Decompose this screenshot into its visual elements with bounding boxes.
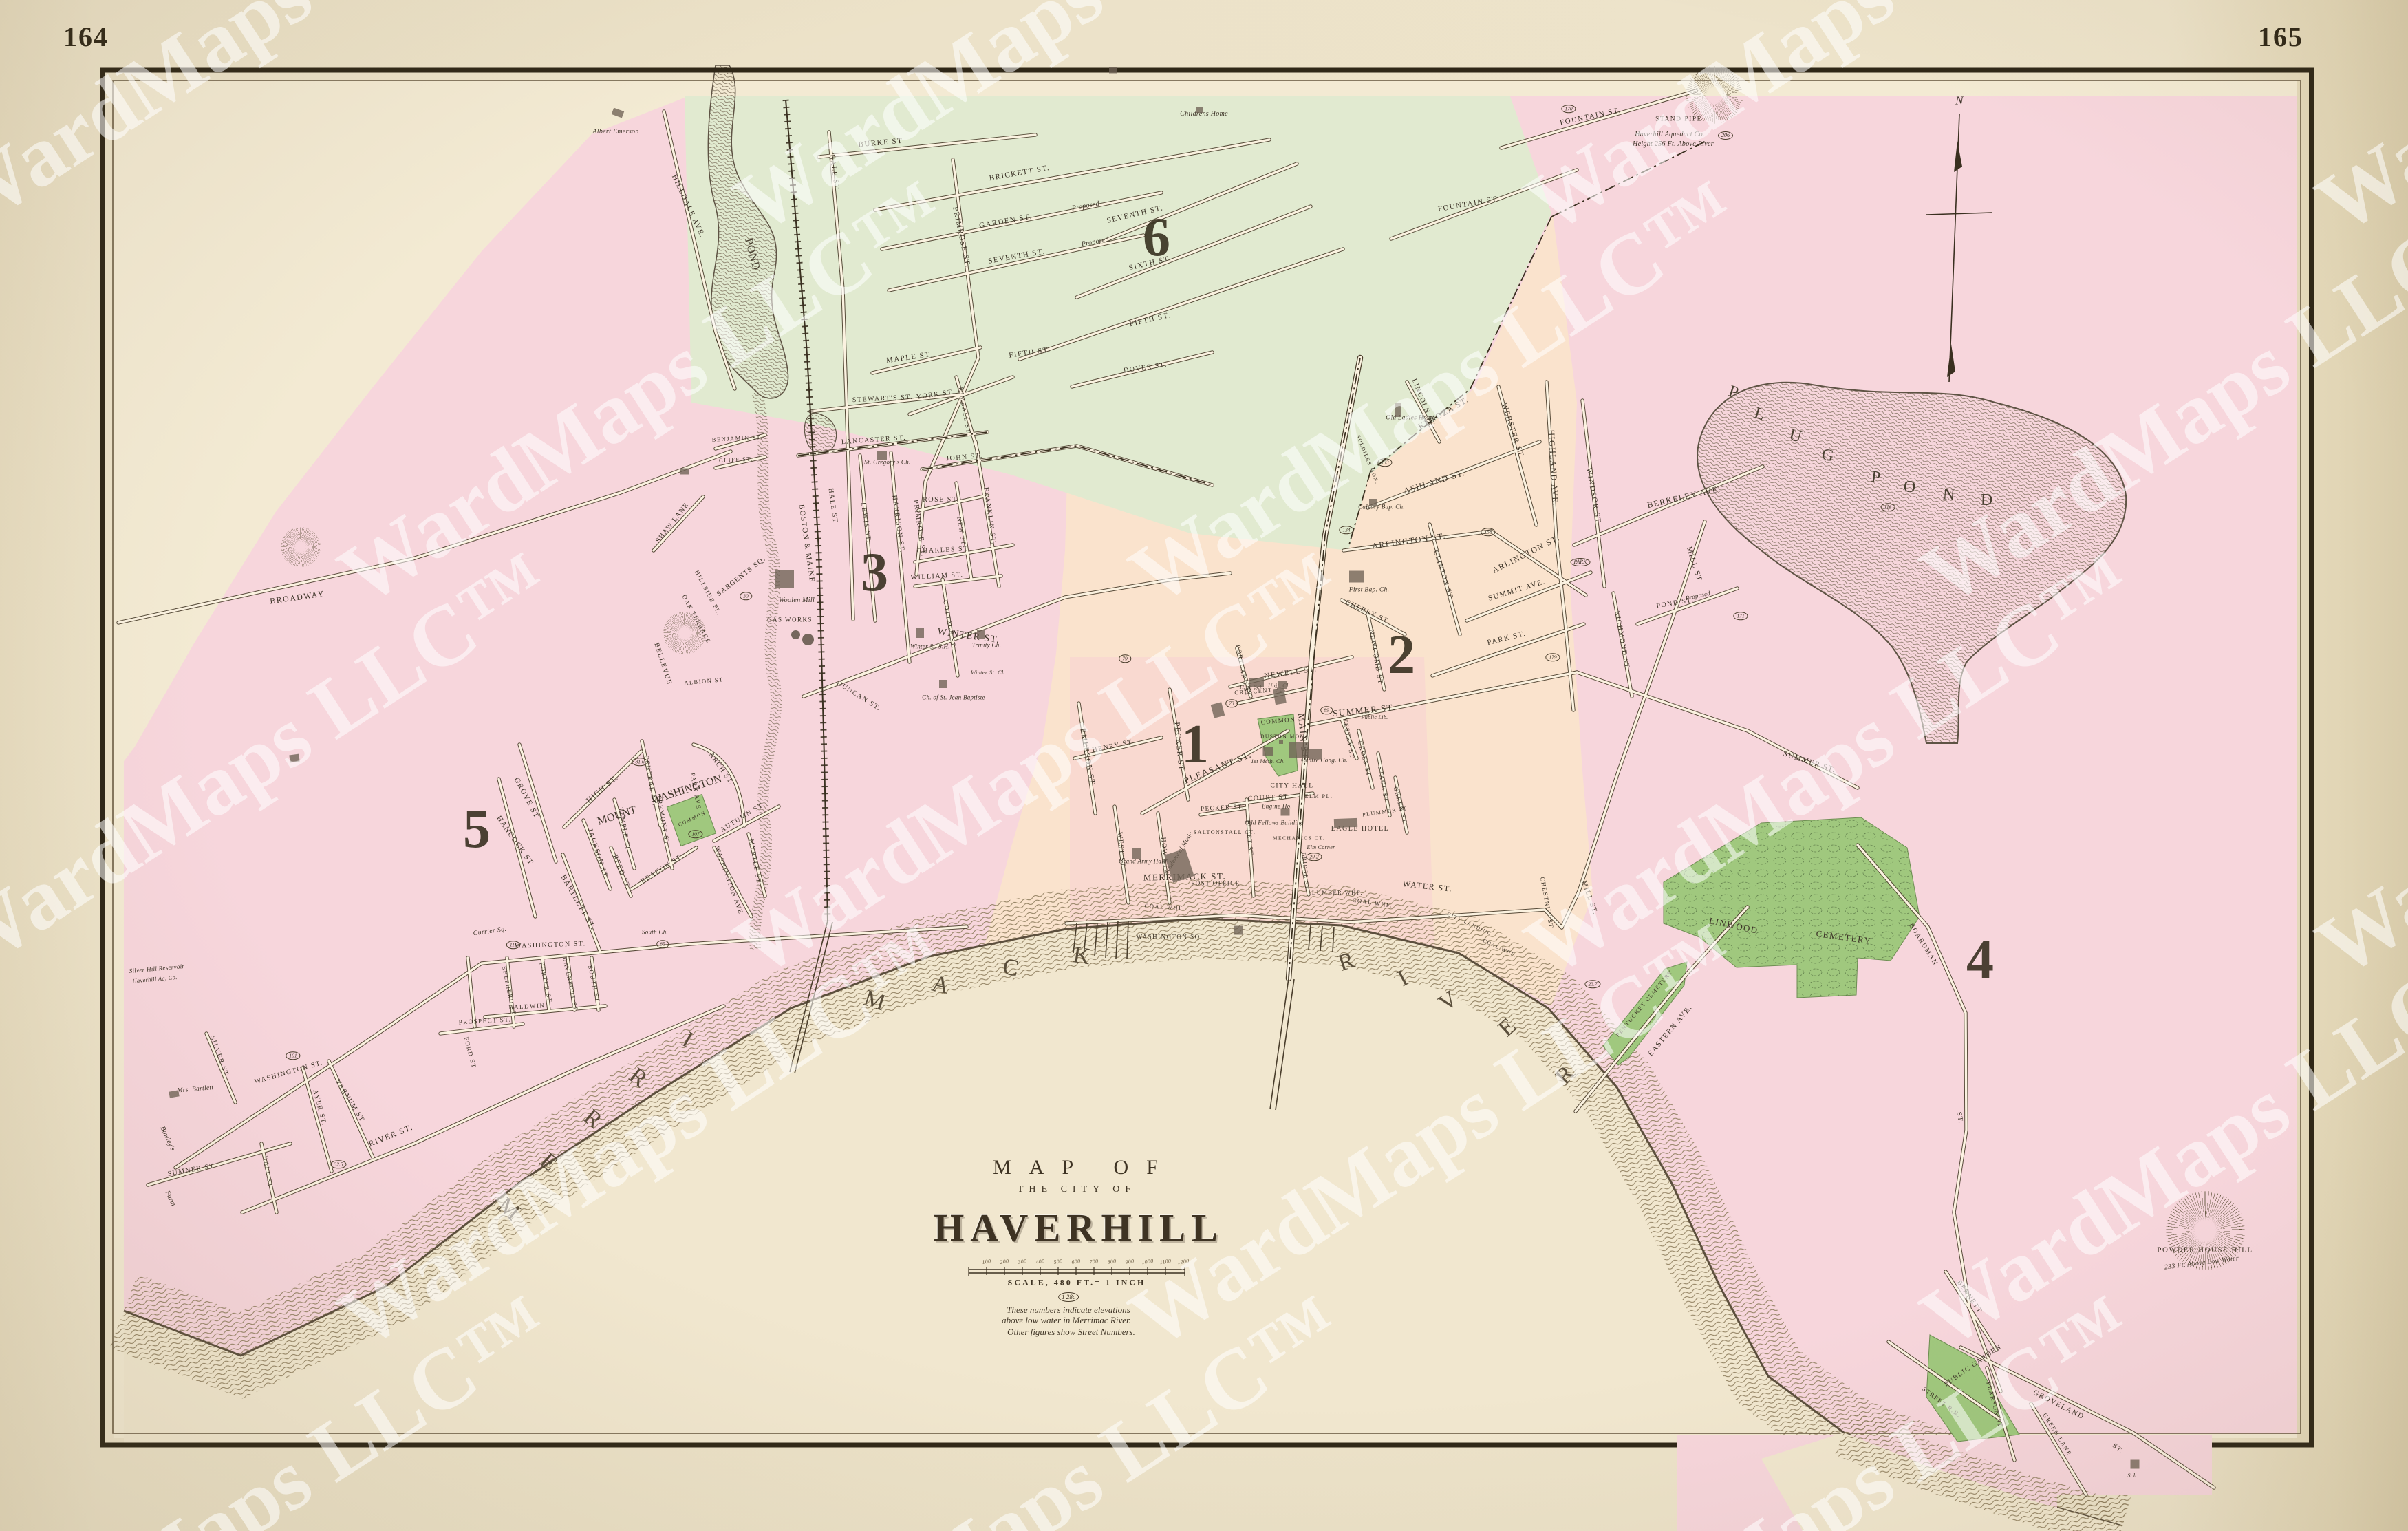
building-block xyxy=(1369,499,1377,506)
map-label-st-gregory-s-ch: St. Gregory's Ch. xyxy=(864,460,910,466)
map-label-111: 111 xyxy=(506,941,520,949)
map-label-public-lib: Public Lib. xyxy=(1362,715,1388,720)
building-block xyxy=(1263,747,1273,756)
map-label-134: 134 xyxy=(1339,526,1353,534)
scale-label: SCALE, 480 FT.= 1 INCH xyxy=(1008,1278,1146,1288)
map-label-washington-sq: WASHINGTON SQ. xyxy=(1137,934,1203,941)
building-block xyxy=(289,754,299,763)
map-label-albert-emerson: Albert Emerson xyxy=(592,129,638,136)
map-label-first-bap-ch: First Bap. Ch. xyxy=(1349,587,1390,594)
title-map-of: MAP OF xyxy=(993,1156,1176,1179)
map-label-haverhill-aqueduct-co: Haverhill Aqueduct Co. xyxy=(1635,131,1705,138)
map-label-mechanics-ct: MECHANICS CT. xyxy=(1273,835,1325,841)
building-block xyxy=(1395,403,1401,417)
building-block xyxy=(775,570,794,588)
map-label-sch: Sch. xyxy=(2127,1473,2138,1479)
building-block xyxy=(877,451,887,460)
title-city-name: HAVERHILL xyxy=(934,1206,1224,1251)
map-label-childrens-home: Childrens Home xyxy=(1180,111,1228,118)
map-label-1st-meth-ch: 1st Meth. Ch. xyxy=(1251,758,1285,764)
map-label-85: 85 xyxy=(656,940,669,948)
map-label-179: 179 xyxy=(1545,653,1560,661)
building-block xyxy=(939,680,947,688)
map-label-k: K xyxy=(1071,943,1093,969)
map-label-stand-pipe: STAND PIPE xyxy=(1655,116,1702,123)
building-block xyxy=(680,469,689,475)
building-block xyxy=(1249,678,1264,687)
district-number-1: 1 xyxy=(1181,717,1209,772)
map-label-duston-mon: DUSTON MON. xyxy=(1260,734,1307,739)
building-block xyxy=(1279,740,1283,744)
building-block xyxy=(1289,742,1309,758)
hill-hachure xyxy=(663,612,706,654)
map-label-elm-pl: ELM PL. xyxy=(1305,794,1333,800)
map-label-calvary-bap-ch: Calvary Bap. Ch. xyxy=(1358,504,1405,511)
map-label-elm-corner: Elm Corner xyxy=(1307,845,1335,850)
map-label-height-256-ft-above-river: Height 256 Ft. Above River xyxy=(1633,141,1714,148)
map-label-d: D xyxy=(1980,492,1993,509)
hill-hachure xyxy=(2166,1191,2245,1270)
map-label-south-ch: South Ch. xyxy=(642,930,668,936)
map-label-170: 170 xyxy=(1561,105,1576,113)
map-label-o: O xyxy=(1903,478,1917,496)
atlas-page: 164 165 xyxy=(0,0,2408,1531)
building-block xyxy=(1281,809,1290,816)
map-label-79: 79 xyxy=(1119,654,1131,663)
building-block xyxy=(2131,1460,2140,1469)
note-line-2: above low water in Merrimac River. xyxy=(1002,1315,1131,1326)
map-label-171: 171 xyxy=(1733,612,1748,620)
map-label-park: PARK xyxy=(1571,558,1591,566)
hill-hachure xyxy=(1686,66,1743,124)
map-label-gas-works: GAS WORKS xyxy=(767,617,813,623)
district-number-3: 3 xyxy=(861,545,888,600)
map-label-158: 158 xyxy=(1481,528,1495,536)
map-label-206: 206 xyxy=(1718,131,1733,140)
map-label-n: N xyxy=(1942,486,1956,503)
map-label-old-ladies-home: Old Ladies Home xyxy=(1386,415,1435,422)
note-line-3: Other figures show Street Numbers. xyxy=(1007,1327,1135,1338)
map-label-107: 107 xyxy=(688,830,702,838)
map-label-73: 73 xyxy=(1225,699,1238,707)
building-block xyxy=(977,630,985,639)
building-block xyxy=(1334,818,1357,828)
map-label-81-6: 81.6 xyxy=(632,758,647,766)
map-label-89: 89 xyxy=(1320,706,1333,714)
building-block xyxy=(1234,926,1243,935)
map-label-city-hall: CITY HALL xyxy=(1270,783,1313,790)
map-label-woolen-mill: Woolen Mill xyxy=(779,597,815,604)
map-label-rose-st: ROSE ST. xyxy=(923,497,960,504)
map-label-133: 133 xyxy=(1377,458,1392,467)
note-badge: 1 28c xyxy=(1058,1292,1079,1302)
map-label-lumber-whf: LUMBER WHF. xyxy=(1312,890,1363,896)
map-label-118: 118 xyxy=(1881,503,1895,511)
map-label-23-7: 23.7 xyxy=(1584,980,1600,988)
building-block xyxy=(1349,571,1364,583)
map-label-29-2: 29.2 xyxy=(1306,853,1322,861)
building-block xyxy=(1196,107,1203,113)
map-label-ch-of-st-jean-baptiste: Ch. of St. Jean Baptiste xyxy=(922,695,985,701)
gasometer xyxy=(802,634,814,645)
district-number-4: 4 xyxy=(1966,932,1994,987)
map-label-101: 101 xyxy=(286,1051,300,1060)
title-the-city-of: THE CITY OF xyxy=(1018,1184,1136,1195)
building-block xyxy=(1132,848,1141,859)
building-block xyxy=(1309,749,1322,760)
district-number-2: 2 xyxy=(1388,628,1415,683)
map-label-odd-fellows-building: Odd Fellows Building xyxy=(1245,820,1304,826)
gasometer xyxy=(791,630,800,639)
map-label-post-office: POST OFFICE xyxy=(1191,881,1240,887)
note-line-1: These numbers indicate elevations xyxy=(1007,1305,1130,1316)
building-block xyxy=(1278,681,1287,689)
map-label-30: 30 xyxy=(740,592,752,600)
hill-hachure xyxy=(281,527,321,567)
building-block xyxy=(1109,67,1117,74)
map-label-n: N xyxy=(1955,95,1964,107)
map-label-trinity-ch: Trinity Ch. xyxy=(972,643,1001,649)
building-block xyxy=(916,628,924,638)
district-number-5: 5 xyxy=(463,802,491,857)
map-label-winter-st-ch: Winter St. Ch. xyxy=(971,670,1007,676)
map-label-st: ST. xyxy=(1955,1111,1964,1124)
map-label-winter-st-s-h: Winter St. S.H. xyxy=(910,644,950,650)
map-label-32-5: 32.5 xyxy=(330,1160,346,1168)
